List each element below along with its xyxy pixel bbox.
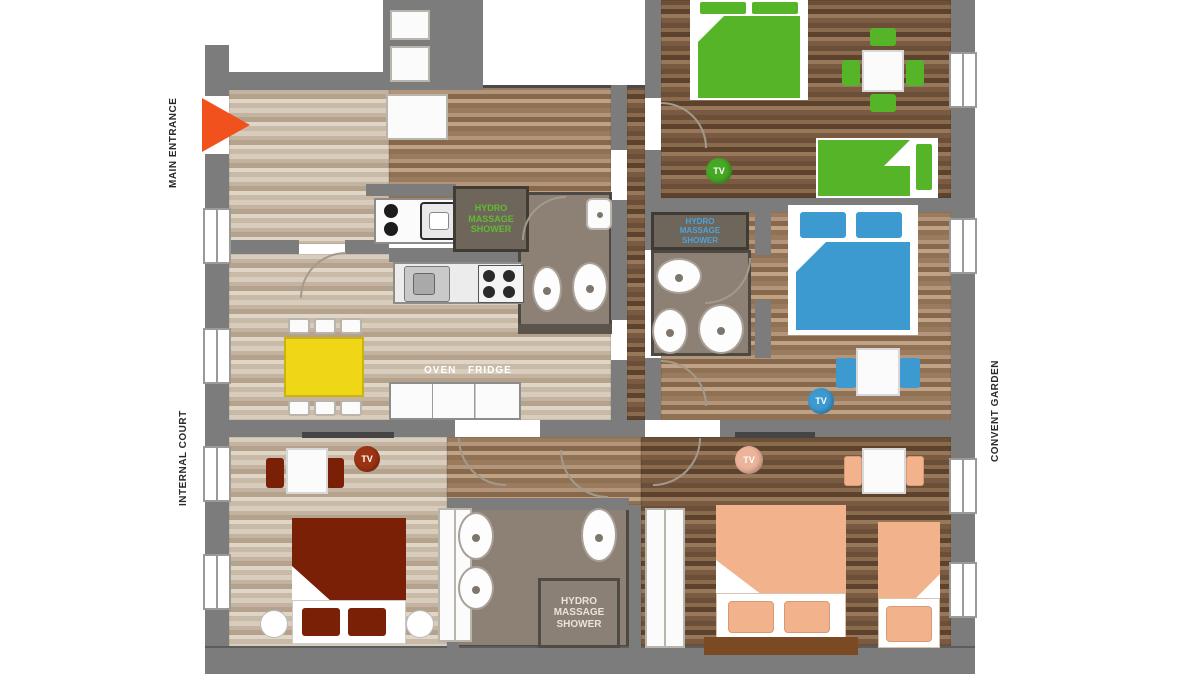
bath3-bidet bbox=[458, 566, 494, 610]
hob-burner-4 bbox=[503, 286, 515, 298]
green-chair-right bbox=[906, 60, 924, 86]
bath2-toilet bbox=[652, 308, 688, 354]
peach-double-bed bbox=[716, 505, 846, 639]
hob-burner-2 bbox=[503, 270, 515, 282]
green-single-bed bbox=[816, 138, 938, 198]
floor-plan-canvas: MAIN ENTRANCE INTERNAL COURT CONVENT GAR… bbox=[0, 0, 1200, 675]
blue-room-west-wall-b bbox=[755, 300, 771, 358]
kitchen-top-wall bbox=[366, 184, 456, 196]
kitchen-sink-top bbox=[420, 202, 456, 240]
blue-chair-left bbox=[836, 358, 856, 388]
terrace-area bbox=[480, 0, 645, 88]
blue-bed-fold bbox=[796, 242, 826, 272]
gas-hob bbox=[478, 265, 524, 303]
hall-wardrobe bbox=[386, 94, 448, 140]
tv-marker-peach: TV bbox=[735, 446, 763, 474]
peach-bed-fold bbox=[716, 560, 762, 595]
peach-chair-left bbox=[844, 456, 862, 486]
red-nightstand-left bbox=[260, 610, 288, 638]
hydro-shower-2: HYDRO MASSAGE SHOWER bbox=[651, 212, 749, 250]
peach-pillow-1 bbox=[728, 601, 774, 633]
fridge-label: FRIDGE bbox=[468, 365, 512, 376]
red-table bbox=[286, 448, 328, 494]
red-pillow-2 bbox=[348, 608, 386, 636]
window-left-2 bbox=[203, 328, 231, 384]
bath1-sink-drain bbox=[597, 212, 603, 218]
hydro-shower-1-label: HYDRO MASSAGE SHOWER bbox=[461, 203, 521, 234]
peach-single-bed bbox=[878, 522, 940, 648]
bottom-exterior-wall bbox=[205, 646, 975, 674]
green-single-pillow bbox=[916, 144, 932, 190]
dining-chair-6 bbox=[340, 400, 362, 416]
hydro-shower-2-label: HYDRO MASSAGE SHOWER bbox=[674, 217, 726, 245]
window-left-3 bbox=[203, 446, 231, 502]
bath1-sink bbox=[586, 198, 612, 230]
green-table bbox=[862, 50, 904, 92]
window-left-4 bbox=[203, 554, 231, 610]
sink-basin bbox=[429, 212, 449, 230]
burner-1 bbox=[384, 204, 398, 218]
window-left-1 bbox=[203, 208, 231, 264]
corridor-west-wall-c bbox=[611, 360, 627, 420]
green-bed-fold bbox=[698, 16, 724, 42]
bathroom-3-east-wall bbox=[629, 505, 641, 648]
blue-chair-right bbox=[900, 358, 920, 388]
tv-marker-red: TV bbox=[354, 446, 380, 472]
central-corridor-floor bbox=[627, 85, 645, 420]
green-chair-left bbox=[842, 60, 860, 86]
hydro-shower-1: HYDRO MASSAGE SHOWER bbox=[453, 186, 529, 252]
hydro-shower-3-label: HYDRO MASSAGE SHOWER bbox=[549, 596, 609, 631]
dining-chair-2 bbox=[314, 318, 336, 334]
green-pillow-2 bbox=[752, 2, 798, 14]
red-room-threshold bbox=[302, 432, 394, 438]
peach-room-threshold bbox=[735, 432, 815, 438]
top-left-wall bbox=[229, 72, 389, 90]
utility-cabinet bbox=[390, 10, 430, 40]
blue-table bbox=[856, 348, 900, 396]
peach-single-pillow bbox=[886, 606, 932, 642]
hall-dining-wall-a bbox=[229, 240, 299, 254]
entrance-arrow-icon bbox=[202, 98, 250, 152]
peach-chair-right bbox=[906, 456, 924, 486]
blue-room-west-wall-a bbox=[755, 212, 771, 255]
dining-chair-1 bbox=[288, 318, 310, 334]
sink-basin-2 bbox=[413, 273, 435, 295]
bath1-toilet bbox=[532, 266, 562, 312]
utility-cabinet-2 bbox=[390, 46, 430, 82]
kitchen-sink-mid bbox=[404, 266, 450, 302]
window-right-1 bbox=[949, 52, 977, 108]
peach-bed-bench bbox=[704, 637, 858, 655]
bath2-bidet bbox=[698, 304, 744, 354]
bath3-toilet bbox=[458, 512, 494, 560]
red-chair-right bbox=[326, 458, 344, 488]
window-right-3 bbox=[949, 458, 977, 514]
blue-pillow-1 bbox=[800, 212, 846, 238]
red-chair-left bbox=[266, 458, 284, 488]
window-right-2 bbox=[949, 218, 977, 274]
bath3-sink bbox=[581, 508, 617, 562]
peach-room-wardrobe bbox=[645, 508, 685, 648]
main-entrance-label: MAIN ENTRANCE bbox=[168, 68, 179, 188]
green-double-bed bbox=[690, 0, 808, 100]
green-pillow-1 bbox=[700, 2, 746, 14]
internal-court-label: INTERNAL COURT bbox=[178, 386, 189, 506]
green-chair-bottom bbox=[870, 94, 896, 112]
tv-marker-blue: TV bbox=[808, 388, 834, 414]
burner-2 bbox=[384, 222, 398, 236]
dining-table bbox=[284, 337, 364, 397]
corridor-east-wall-a bbox=[645, 0, 661, 98]
dining-chair-5 bbox=[314, 400, 336, 416]
oven-label: OVEN bbox=[424, 365, 456, 376]
oven-fridge-cabinets bbox=[389, 382, 521, 420]
hydro-shower-3: HYDRO MASSAGE SHOWER bbox=[538, 578, 620, 648]
red-nightstand-right bbox=[406, 610, 434, 638]
corridor-east-wall-c bbox=[645, 358, 661, 420]
window-right-4 bbox=[949, 562, 977, 618]
bath1-bidet bbox=[572, 262, 608, 312]
red-pillow-1 bbox=[302, 608, 340, 636]
blue-double-bed bbox=[788, 205, 918, 335]
mid-horizontal-wall-b bbox=[540, 420, 645, 437]
dining-chair-3 bbox=[340, 318, 362, 334]
bath2-sink bbox=[656, 258, 702, 294]
peach-table bbox=[862, 448, 906, 494]
hob-burner-1 bbox=[483, 270, 495, 282]
entrance-hall-floor bbox=[229, 85, 389, 244]
hob-burner-3 bbox=[483, 286, 495, 298]
peach-single-fold bbox=[914, 574, 940, 600]
red-bed-fold bbox=[292, 566, 332, 602]
blue-pillow-2 bbox=[856, 212, 902, 238]
corridor-west-wall-a bbox=[611, 85, 627, 150]
dining-chair-4 bbox=[288, 400, 310, 416]
convent-garden-label: CONVENT GARDEN bbox=[990, 332, 1001, 462]
bath1-ledge bbox=[518, 324, 612, 334]
corridor-west-wall-b bbox=[611, 200, 627, 320]
peach-pillow-2 bbox=[784, 601, 830, 633]
green-single-fold bbox=[884, 140, 910, 166]
green-chair-top bbox=[870, 28, 896, 46]
red-double-bed bbox=[292, 518, 406, 644]
tv-marker-green: TV bbox=[706, 158, 732, 184]
